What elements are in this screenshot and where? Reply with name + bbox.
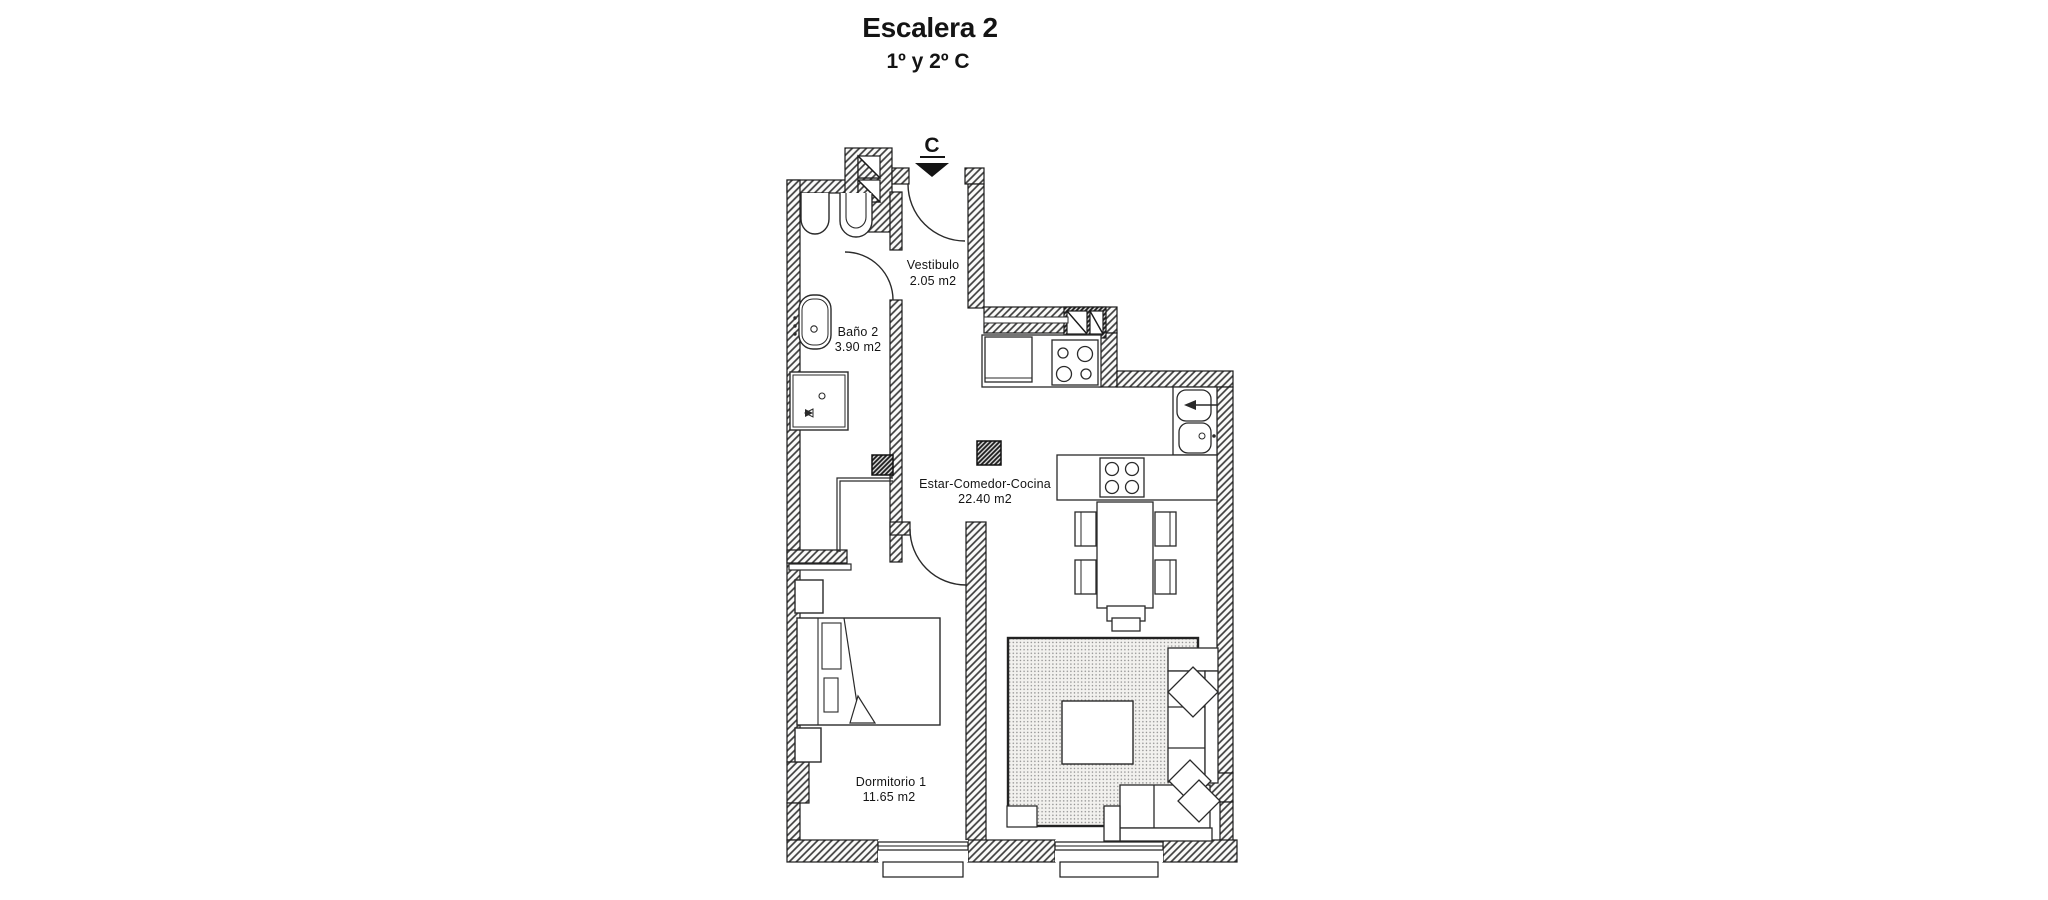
room-area-bano2: 3.90 m2 (835, 340, 882, 354)
wall-top-right (1117, 371, 1233, 387)
window-living (1055, 840, 1163, 877)
column-closet (872, 455, 893, 475)
closet-shelf (789, 564, 851, 570)
dining-chair (1155, 512, 1176, 546)
room-label-bano2: Baño 2 (838, 325, 879, 339)
wall-right-low (1220, 802, 1233, 842)
wall-closet-bottom (787, 550, 847, 563)
entrance-marker: C (915, 134, 949, 177)
window-bedroom (878, 840, 968, 877)
kitchen-vent-icon (1064, 307, 1106, 338)
dining-chair (1107, 606, 1145, 631)
wall-right (1217, 387, 1233, 773)
rug-notch (1007, 806, 1037, 827)
room-area-vestibulo: 2.05 m2 (910, 274, 957, 288)
toilet-icon (801, 193, 829, 234)
wall-left-low (787, 803, 800, 840)
entrance-arrow-icon (915, 163, 949, 177)
column-living (977, 441, 1001, 465)
wall-bottom-right (1163, 840, 1237, 862)
sofa-armrest (1104, 806, 1120, 841)
coffee-table (1062, 701, 1133, 764)
room-area-dormitorio1: 11.65 m2 (863, 790, 916, 804)
wall-bathroom-right-upper (890, 192, 902, 250)
room-label-dormitorio1: Dormitorio 1 (856, 775, 926, 789)
nightstand (795, 580, 823, 613)
plan-header: Escalera 2 1º y 2º C (862, 12, 998, 73)
cooktop-icon (1052, 340, 1098, 385)
room-area-estar: 22.40 m2 (958, 492, 1012, 506)
room-label-estar: Estar-Comedor-Cocina (919, 477, 1051, 491)
bedroom-door-swing (910, 529, 966, 585)
closet-outline (840, 481, 893, 552)
wall-entrance-left (892, 168, 909, 184)
sink-icon (1173, 387, 1217, 455)
dining-chair (1075, 512, 1096, 546)
bidet-icon (840, 193, 872, 237)
dining-table (1097, 502, 1153, 608)
shower-icon (790, 372, 848, 430)
wall-bottom-middle (968, 840, 1055, 862)
wall-kitchen-corner (1099, 333, 1117, 387)
bedroom-furniture (795, 580, 940, 762)
page-subtitle: 1º y 2º C (886, 50, 969, 73)
upper-cabinet-line (984, 317, 1068, 323)
wall-bottom-left (787, 840, 878, 862)
room-label-vestibulo: Vestibulo (907, 258, 960, 272)
fridge-icon (985, 337, 1032, 382)
bathroom-door-swing (845, 252, 893, 300)
sofa-back-bottom (1120, 828, 1212, 841)
closet-outline-inner (837, 478, 893, 552)
dining-chair (1155, 560, 1176, 594)
bed-icon (797, 618, 940, 725)
wall-left-step (787, 762, 809, 803)
wall-entrance-right (965, 168, 984, 184)
floor-plan-canvas: C Vestibulo 2.05 m2 Baño 2 3.90 m2 Estar… (0, 0, 2048, 900)
bathroom-fixtures (790, 193, 872, 430)
dining-chair (1075, 560, 1096, 594)
floor-plan-page: C Vestibulo 2.05 m2 Baño 2 3.90 m2 Estar… (0, 0, 2048, 900)
window-sill (883, 862, 963, 877)
wall-bedroom-door-jamb (890, 522, 910, 535)
hob-icon (1100, 458, 1144, 497)
window-sill (1060, 862, 1158, 877)
wall-living-divider (966, 522, 986, 850)
dining-set (1075, 502, 1176, 631)
nightstand (795, 728, 821, 762)
wall-kitchen-left (968, 184, 984, 308)
page-title: Escalera 2 (862, 12, 998, 43)
entrance-letter: C (924, 134, 939, 157)
living-furniture (1007, 638, 1220, 841)
entrance-door-swing (908, 184, 965, 241)
kitchen-appliances (982, 317, 1217, 500)
